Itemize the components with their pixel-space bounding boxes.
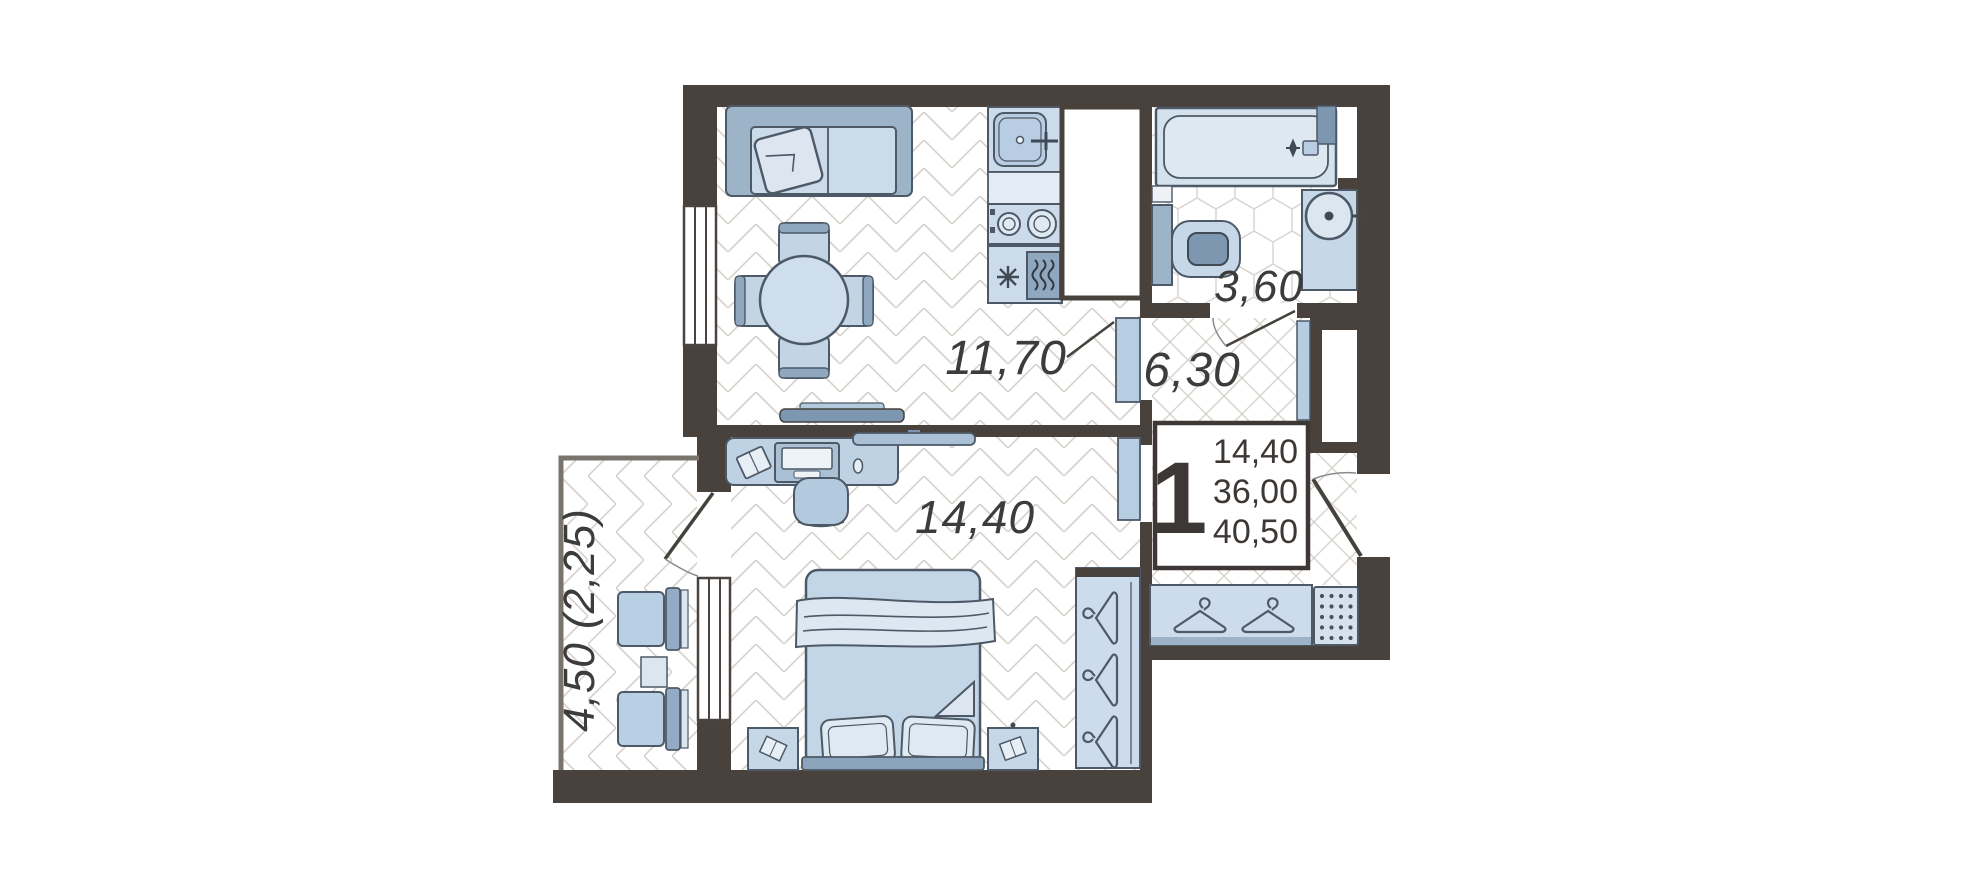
nightstand-left — [748, 728, 798, 770]
burner-icon — [998, 213, 1020, 235]
living-room-area-label: 11,70 — [945, 332, 1067, 385]
shower-panel — [1317, 106, 1336, 144]
sofa — [726, 106, 912, 196]
tv-bedroom — [853, 430, 975, 445]
wall-top — [683, 85, 1390, 107]
window-living — [684, 206, 716, 345]
bathroom-area-label: 3,60 — [1214, 262, 1304, 311]
burner-icon — [1028, 210, 1056, 238]
entry-closet — [1150, 585, 1312, 645]
entry-area — [1150, 585, 1358, 645]
bedroom-door — [1118, 438, 1140, 520]
headboard — [802, 757, 984, 770]
blanket — [796, 598, 995, 647]
info-area-line-2: 36,00 — [1213, 473, 1298, 511]
bathtub — [1156, 106, 1336, 186]
floor-plan-canvas: 1 14,40 36,00 40,50 11,70 6,30 3,60 14,4… — [0, 0, 1980, 886]
wall-interior-lower — [1140, 522, 1152, 774]
mouse — [854, 459, 863, 473]
kitchen-sink-unit — [988, 107, 1062, 172]
bath-niche — [1336, 107, 1357, 178]
fridge — [1062, 107, 1142, 298]
wall-left-mid — [683, 345, 717, 437]
nightstand-right — [988, 723, 1038, 771]
dining-table — [760, 256, 848, 344]
fridge-oven-unit — [988, 246, 1062, 303]
info-box: 1 14,40 36,00 40,50 — [1151, 423, 1308, 568]
stove — [988, 204, 1062, 244]
hall-area-label: 6,30 — [1143, 344, 1240, 397]
bedroom-area-label: 14,40 — [915, 491, 1035, 543]
floor-plan-page: 1 14,40 36,00 40,50 11,70 6,30 3,60 14,4… — [0, 0, 1980, 886]
wall-bottom — [553, 770, 1152, 803]
window-balcony — [698, 578, 730, 720]
wall-bath-bottom-left — [1140, 303, 1210, 318]
sink-drain — [1017, 137, 1024, 144]
shaft-niche — [1322, 330, 1357, 442]
wardrobe — [1076, 568, 1140, 768]
balcony-armchair — [618, 588, 688, 650]
info-rooms-count: 1 — [1151, 441, 1208, 555]
laptop — [775, 443, 839, 482]
info-area-line-3: 40,50 — [1213, 513, 1298, 551]
balcony-area-label: 4,50 (2,25) — [555, 508, 604, 732]
balcony-table — [641, 657, 667, 687]
vanity-sink — [1302, 190, 1362, 290]
doormat — [1314, 587, 1358, 645]
wall-bottom-right — [1152, 645, 1390, 660]
wall-right-lower — [1357, 557, 1390, 660]
balcony-armchair — [618, 688, 688, 750]
office-chair — [794, 478, 848, 527]
kitchen-furniture — [988, 107, 1142, 303]
kitchen-counter — [988, 172, 1062, 204]
info-area-line-1: 14,40 — [1213, 433, 1298, 471]
wall-interior-mid — [1140, 400, 1152, 445]
wall-left-upper — [683, 85, 717, 207]
water-inlet — [1152, 186, 1172, 202]
snowflake-icon — [997, 266, 1019, 288]
wall-bedroom-left-lower — [697, 720, 731, 775]
wall-right-upper — [1357, 107, 1390, 474]
bed — [796, 570, 995, 770]
